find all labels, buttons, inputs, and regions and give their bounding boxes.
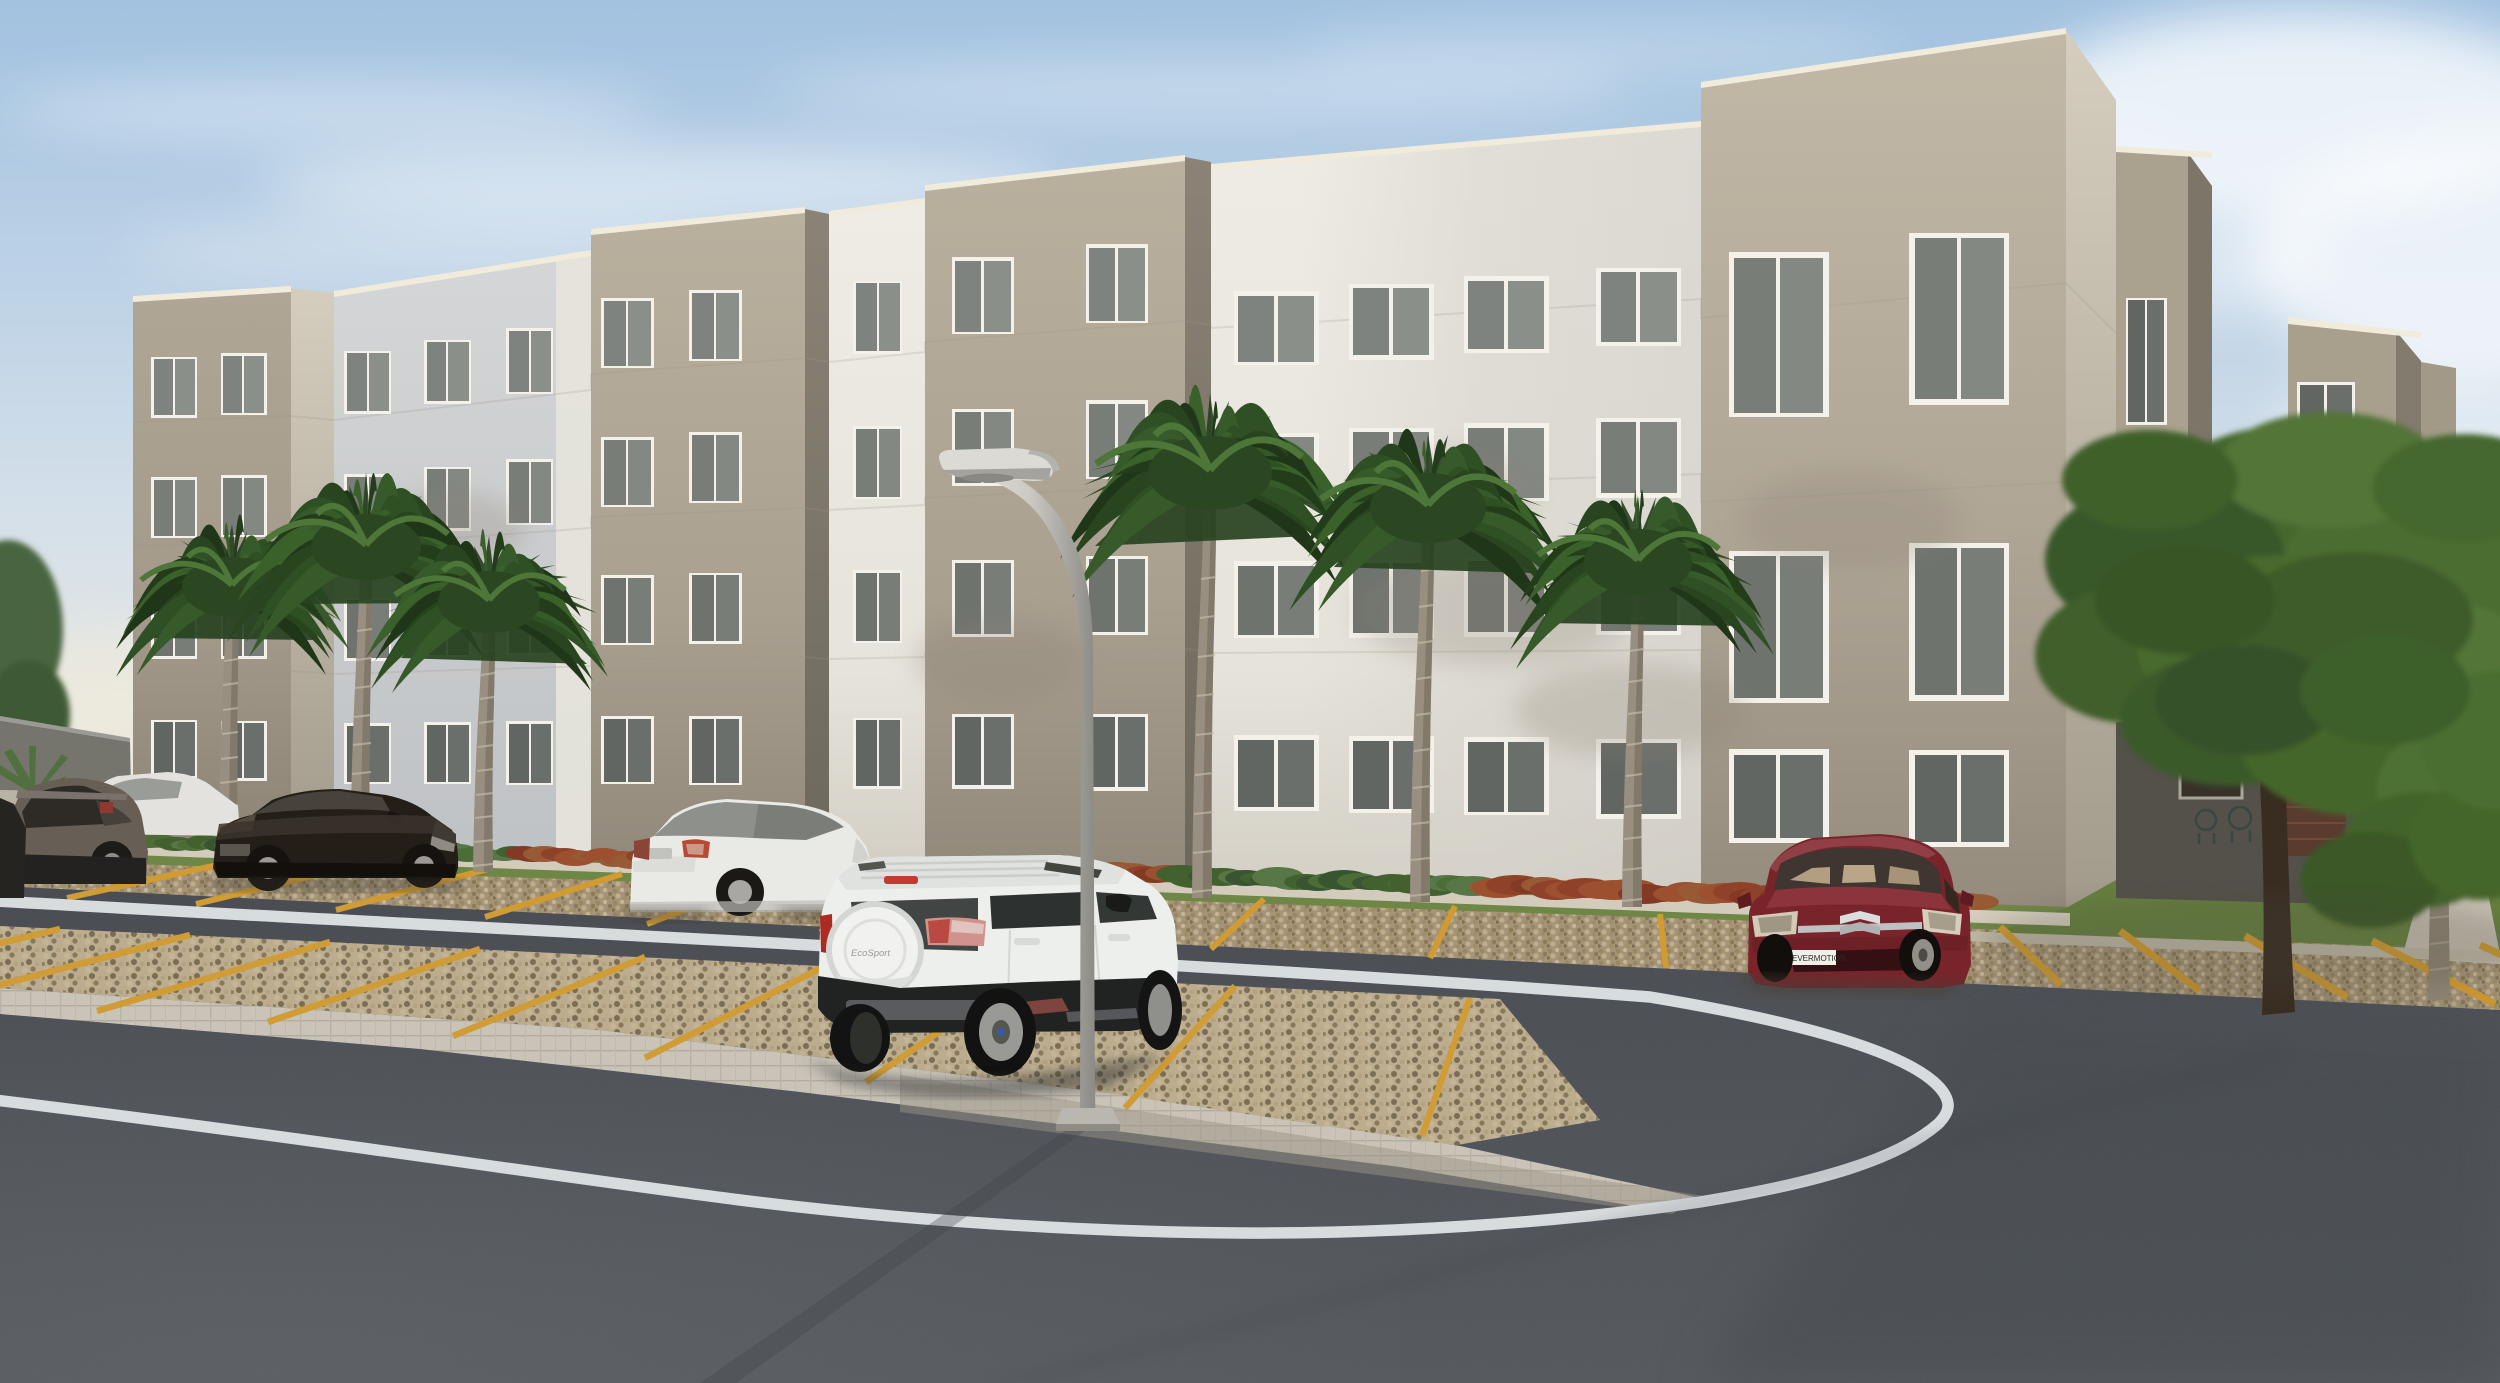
svg-text:EcoSport: EcoSport: [851, 948, 890, 959]
svg-text:EVERMOTION: EVERMOTION: [1792, 954, 1846, 963]
